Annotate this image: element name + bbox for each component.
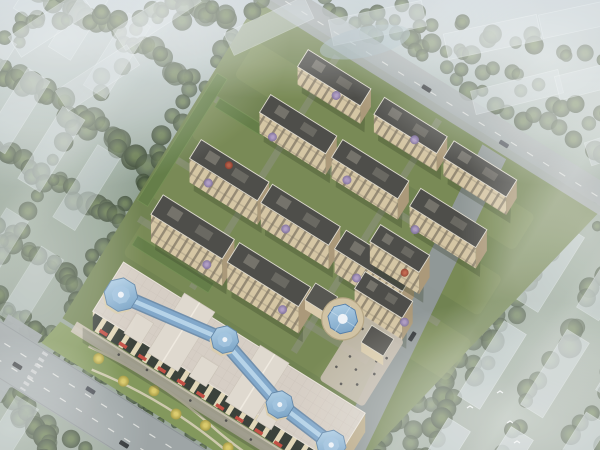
haze-veil [0, 0, 600, 450]
aerial-site-rendering [0, 0, 600, 450]
rendering-canvas [0, 0, 600, 450]
haze-overlay [0, 0, 600, 450]
